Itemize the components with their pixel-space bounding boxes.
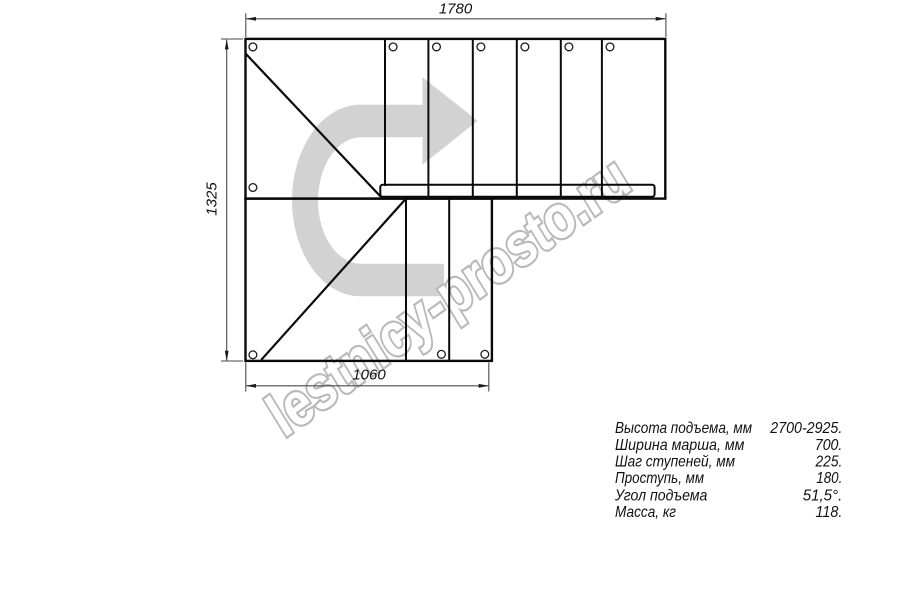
svg-text:118.: 118.	[816, 504, 843, 521]
svg-text:Ширина марша, мм: Ширина марша, мм	[615, 437, 744, 454]
svg-text:Шаг ступеней, мм: Шаг ступеней, мм	[615, 454, 735, 471]
svg-text:2700-2925.: 2700-2925.	[769, 420, 842, 437]
svg-text:51,5°.: 51,5°.	[803, 487, 843, 504]
svg-text:Масса, кг: Масса, кг	[615, 504, 676, 521]
svg-text:Высота подъема, мм: Высота подъема, мм	[615, 420, 752, 437]
svg-text:1780: 1780	[439, 1, 473, 18]
svg-text:700.: 700.	[815, 437, 842, 454]
svg-text:225.: 225.	[815, 454, 843, 471]
svg-text:1325: 1325	[204, 182, 221, 216]
svg-text:180.: 180.	[816, 470, 842, 487]
svg-text:Угол подъема: Угол подъема	[614, 487, 707, 504]
svg-text:1060: 1060	[352, 367, 386, 384]
svg-text:Проступь, мм: Проступь, мм	[615, 470, 704, 487]
